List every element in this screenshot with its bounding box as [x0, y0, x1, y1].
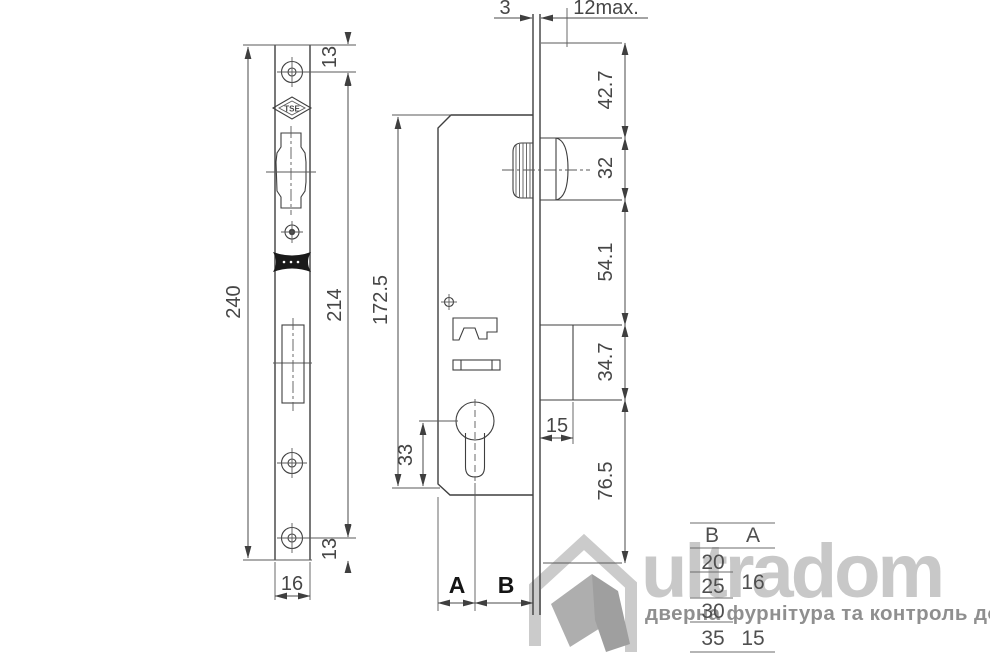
lock-technical-drawing: ultradom дверна фурнітура та контроль до…: [0, 0, 990, 660]
tse-certification-mark: TSE: [273, 97, 311, 119]
tse-label: TSE: [284, 105, 300, 114]
dim-roller-height: 32: [595, 157, 617, 179]
table-b-35: 35: [701, 627, 724, 650]
dim-hole-spacing: 214: [324, 288, 346, 321]
table-a-15: 15: [741, 627, 764, 650]
table-b-25: 25: [701, 575, 724, 598]
deadbolt-opening: [282, 318, 304, 411]
size-table: B A 20 25 30 35 16 15: [690, 523, 775, 652]
label-backset-b: B: [498, 572, 515, 598]
dim-bolt-to-bottom: 76.5: [595, 462, 617, 501]
dim-max-protrusion: 12max.: [573, 0, 639, 19]
screw-hole-middle: [277, 448, 307, 478]
table-header-a: A: [746, 524, 760, 547]
dim-faceplate-thickness: 3: [499, 0, 510, 19]
dim-bottom-hole-offset: 13: [319, 538, 341, 560]
table-b-20: 20: [701, 551, 724, 574]
dim-top-to-roller: 42.7: [595, 71, 617, 110]
table-header-b: B: [705, 524, 719, 547]
dim-overall-length: 240: [223, 285, 245, 318]
cam-cutout: [453, 318, 497, 340]
fixing-hole: [441, 294, 457, 310]
torx-screw-hole: [281, 221, 303, 243]
dim-roller-to-bolt: 54.1: [595, 243, 617, 282]
dim-cylinder-to-bottom: 33: [395, 444, 417, 466]
slot-bar: [453, 360, 500, 370]
dimensions-main-view: 172.5 33 3 12max. 15 42.7 32: [370, 0, 648, 611]
table-a-16: 16: [741, 571, 764, 594]
table-b-30: 30: [701, 600, 724, 623]
latch-opening: [266, 126, 316, 215]
dim-bolt-height: 34.7: [595, 343, 617, 382]
dim-top-hole-offset: 13: [319, 46, 341, 68]
roller-latch-front: [513, 143, 533, 198]
dim-plate-width: 16: [281, 573, 303, 595]
euro-cylinder-hole: [456, 399, 494, 481]
dim-body-height: 172.5: [370, 275, 392, 325]
brand-stamp-icon: [273, 252, 311, 272]
label-backset-a: A: [449, 572, 466, 598]
dim-bolt-throw: 15: [546, 415, 568, 437]
